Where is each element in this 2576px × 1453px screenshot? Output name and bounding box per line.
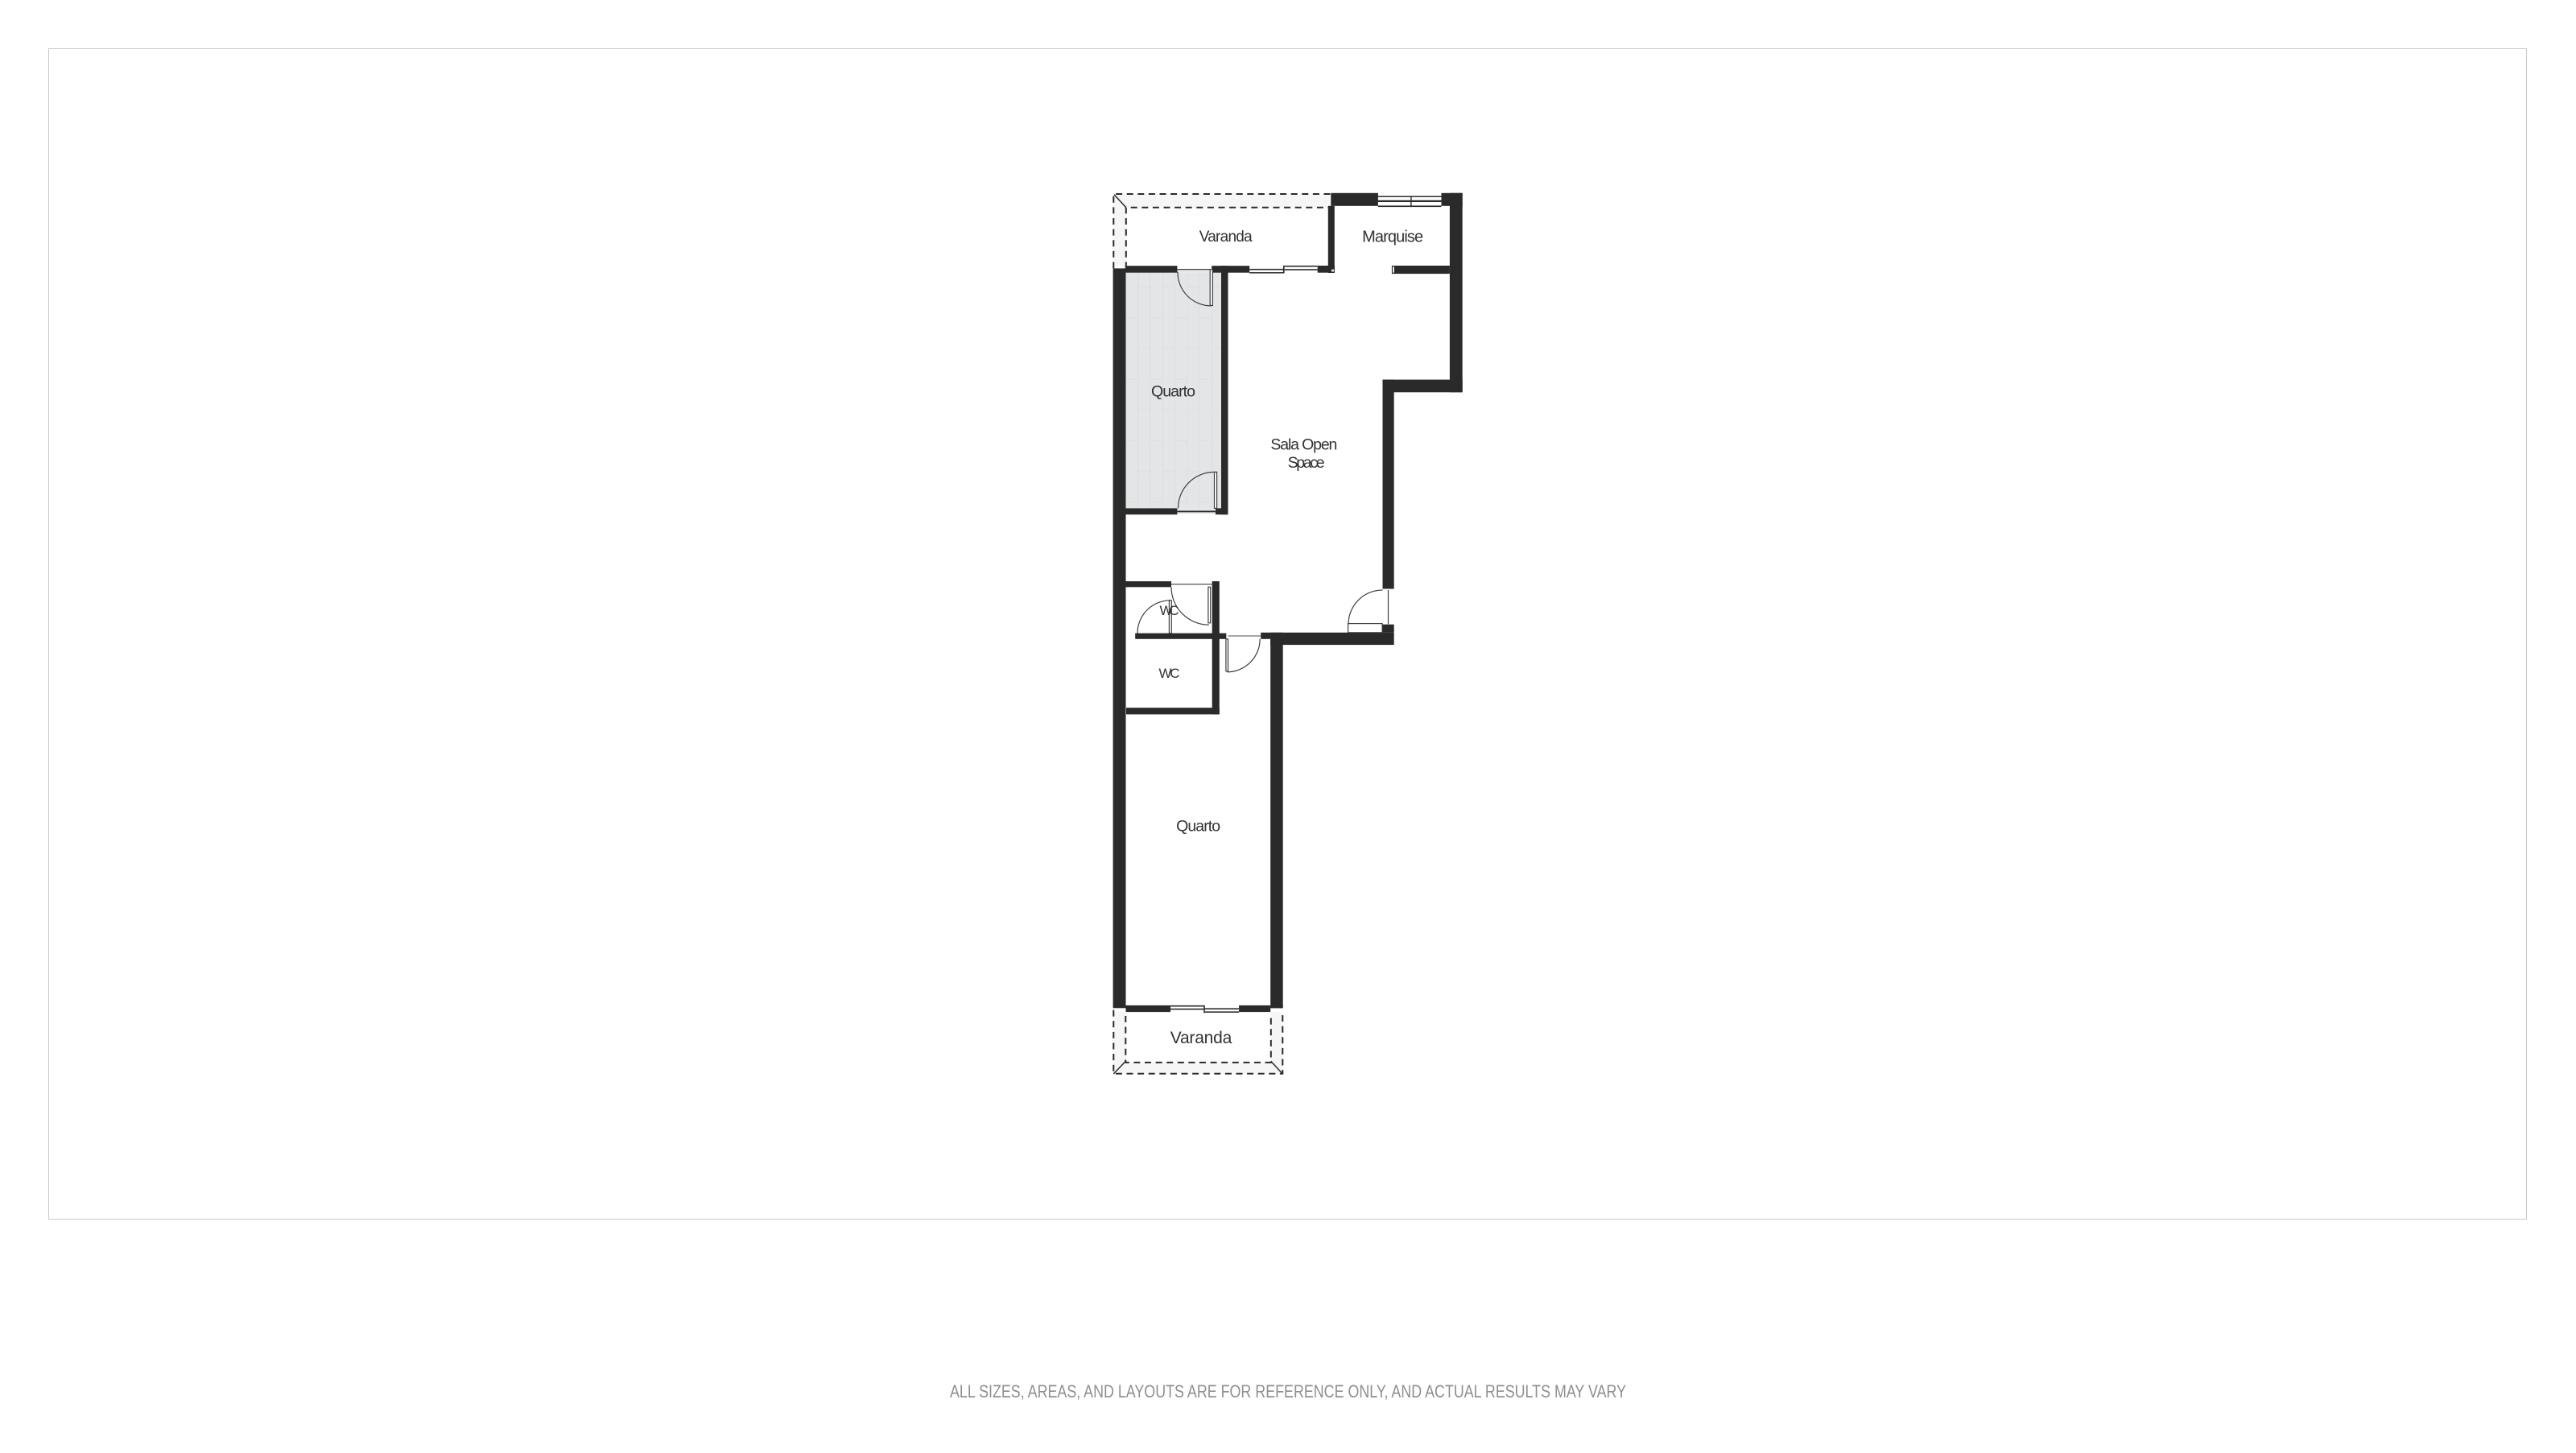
svg-text:Varanda: Varanda — [1170, 1029, 1232, 1047]
svg-text:Sala Open: Sala Open — [1270, 436, 1337, 454]
svg-text:Quarto: Quarto — [1176, 818, 1220, 836]
svg-text:Marquise: Marquise — [1362, 229, 1423, 246]
svg-text:WC: WC — [1159, 666, 1180, 681]
svg-text:Space: Space — [1288, 454, 1325, 472]
svg-text:WC: WC — [1160, 603, 1179, 618]
svg-text:ALL SIZES, AREAS, AND LAYOUTS: ALL SIZES, AREAS, AND LAYOUTS ARE FOR RE… — [950, 1381, 1626, 1401]
svg-text:Quarto: Quarto — [1151, 382, 1195, 400]
svg-text:Varanda: Varanda — [1199, 229, 1253, 246]
